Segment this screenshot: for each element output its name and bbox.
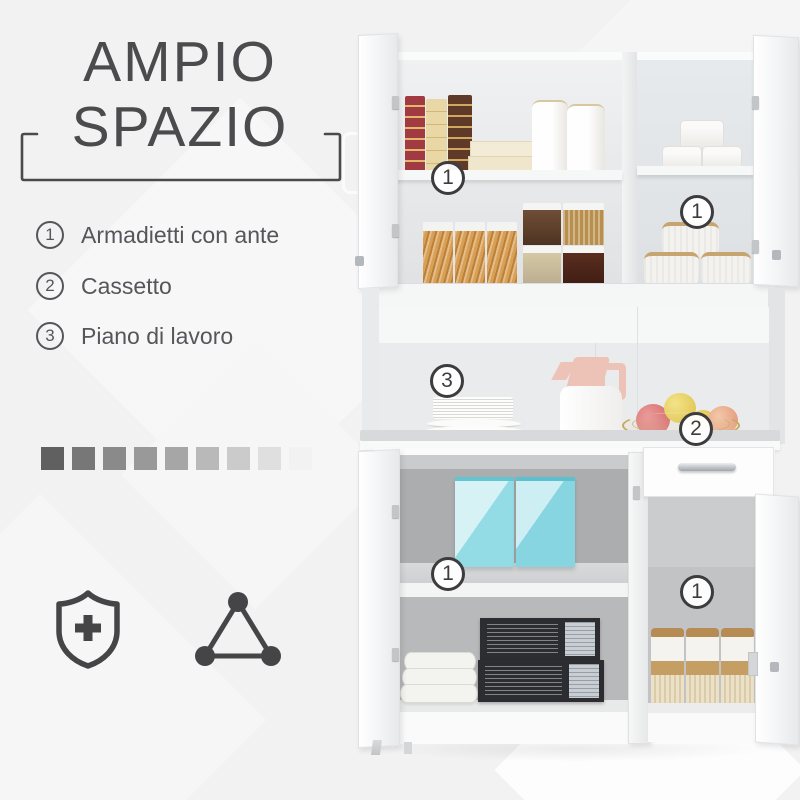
black-box bbox=[478, 660, 604, 702]
gray-scale-palette bbox=[41, 447, 312, 470]
hinge bbox=[392, 648, 399, 661]
shield-plus-icon bbox=[52, 588, 124, 670]
base-right-floor bbox=[648, 703, 755, 713]
black-box bbox=[480, 618, 600, 660]
hinge bbox=[392, 96, 399, 109]
drawer-handle bbox=[678, 463, 736, 471]
white-tub bbox=[680, 120, 724, 149]
pasta-jar bbox=[455, 222, 485, 284]
white-canister-tall bbox=[567, 104, 605, 173]
hinge bbox=[392, 505, 399, 518]
feature-item-1: 1 Armadietti con ante bbox=[36, 221, 279, 249]
callout-badge-upper-left: 1 bbox=[431, 161, 465, 195]
upper-left-shelf bbox=[395, 170, 622, 180]
palette-square bbox=[41, 447, 64, 470]
ceramic-canister bbox=[686, 628, 719, 705]
feature-number-circle: 2 bbox=[36, 272, 64, 300]
triangle-nodes-icon bbox=[192, 590, 284, 670]
hinge bbox=[392, 224, 399, 237]
storage-jar-walnuts bbox=[523, 203, 561, 245]
upper-right-shelf bbox=[637, 166, 755, 175]
pasta-jar bbox=[423, 222, 453, 284]
base-left-interior-top bbox=[393, 455, 628, 469]
plate-stack bbox=[433, 397, 513, 419]
base-left-shelf-edge bbox=[393, 583, 628, 597]
round-basket bbox=[644, 252, 699, 287]
callout-badge-lower-right: 1 bbox=[680, 575, 714, 609]
upper-cabinet-divider bbox=[622, 52, 637, 307]
callout-badge-upper-right: 1 bbox=[680, 195, 714, 229]
cyan-box bbox=[516, 477, 575, 567]
hinge bbox=[752, 240, 759, 253]
headline-line-1: AMPIO bbox=[5, 30, 355, 95]
palette-square bbox=[258, 447, 281, 470]
hinge bbox=[633, 486, 640, 499]
feature-label: Cassetto bbox=[81, 273, 172, 300]
round-basket bbox=[701, 252, 751, 287]
palette-square bbox=[72, 447, 95, 470]
cabinet-leg bbox=[404, 742, 412, 754]
door-knob bbox=[355, 256, 364, 266]
backsplash-upper bbox=[379, 307, 769, 343]
hutch-bottom-board bbox=[375, 283, 775, 308]
countertop-surface bbox=[360, 430, 780, 441]
product-infographic: AMPIO SPAZIO 1 Armadietti con ante 2 Cas… bbox=[0, 0, 800, 800]
upper-left-open-door bbox=[358, 33, 398, 289]
pasta-jar bbox=[487, 222, 517, 284]
palette-square bbox=[103, 447, 126, 470]
feature-item-3: 3 Piano di lavoro bbox=[36, 322, 233, 350]
base-left-bottom-rail bbox=[393, 712, 628, 742]
feature-item-2: 2 Cassetto bbox=[36, 272, 172, 300]
cyan-box bbox=[455, 477, 514, 567]
headline-bracket bbox=[18, 128, 344, 188]
ceramic-canister bbox=[651, 628, 684, 705]
feature-number-circle: 3 bbox=[36, 322, 64, 350]
palette-square bbox=[227, 447, 250, 470]
feature-label: Armadietti con ante bbox=[81, 222, 279, 249]
hinge bbox=[752, 96, 759, 109]
callout-badge-worktop: 3 bbox=[430, 364, 464, 398]
book-cream bbox=[426, 99, 447, 171]
white-food-tray bbox=[400, 684, 478, 703]
teapot-body bbox=[560, 386, 622, 433]
storage-jar-grissini bbox=[563, 203, 604, 245]
book-red bbox=[405, 96, 425, 171]
callout-badge-drawer: 2 bbox=[679, 412, 713, 446]
door-latch bbox=[748, 652, 758, 676]
palette-square bbox=[165, 447, 188, 470]
mid-left-side-panel bbox=[362, 288, 379, 444]
feature-label: Piano di lavoro bbox=[81, 323, 233, 350]
base-right-interior-upper bbox=[648, 497, 755, 567]
base-left-open-door bbox=[358, 449, 400, 748]
feature-number-circle: 1 bbox=[36, 221, 64, 249]
white-canister-tall bbox=[532, 100, 568, 173]
palette-square bbox=[196, 447, 219, 470]
palette-square bbox=[289, 447, 312, 470]
door-knob bbox=[770, 662, 779, 672]
palette-square bbox=[134, 447, 157, 470]
base-right-bottom-rail bbox=[648, 713, 755, 742]
mid-right-side-panel bbox=[768, 288, 785, 444]
drawer-front bbox=[643, 447, 774, 497]
callout-badge-lower-left: 1 bbox=[431, 557, 465, 591]
door-knob bbox=[772, 250, 781, 260]
base-right-open-door bbox=[755, 493, 799, 745]
